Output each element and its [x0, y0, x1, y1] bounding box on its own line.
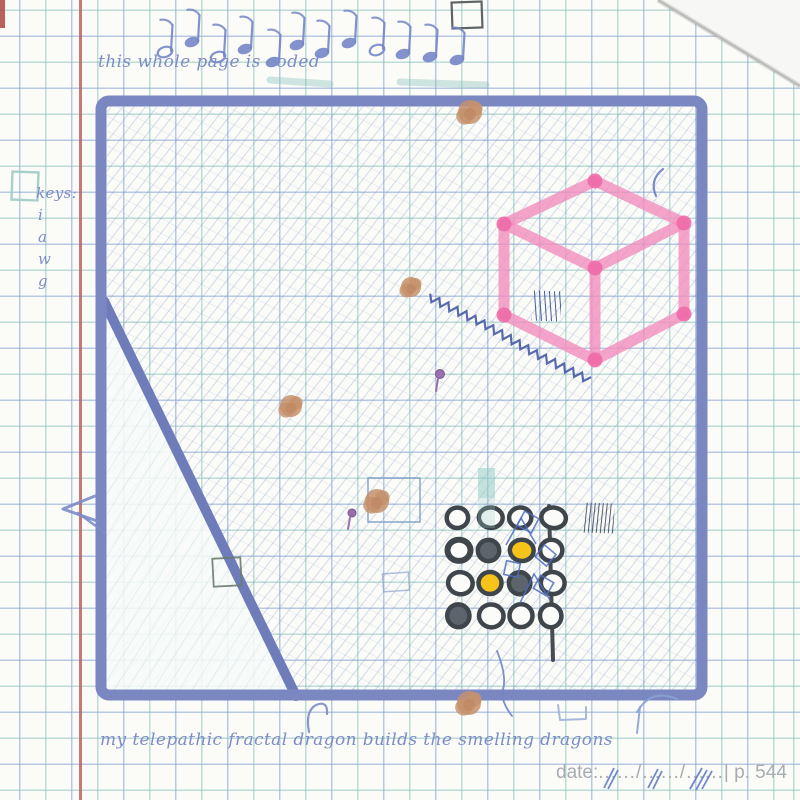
keys-legend: keys: i a w g — [36, 182, 77, 292]
cube-vertex-dot — [497, 217, 512, 232]
cube-vertex-dot — [588, 261, 603, 276]
small-square-doodle-top — [452, 1, 483, 28]
token-circle — [540, 506, 567, 530]
hook-doodle — [308, 704, 327, 732]
teal-highlight-strip — [478, 498, 495, 528]
music-note-icon — [421, 25, 438, 65]
page-number: p. 544 — [734, 762, 787, 783]
date-dots: ....../....../...... — [598, 762, 724, 783]
main-square-panel — [101, 80, 702, 696]
bracket-doodle — [558, 705, 586, 720]
key-item: a — [36, 226, 77, 248]
token-circle — [509, 539, 534, 562]
dark-crosshatch-square — [583, 502, 614, 533]
hatched-square-in-cube — [531, 291, 561, 322]
music-note-icon — [288, 13, 305, 53]
hand-drawing-layer — [0, 0, 800, 800]
keys-label: keys: — [36, 182, 77, 204]
date-label: date: — [556, 762, 598, 783]
cube-vertex-dot — [677, 216, 692, 231]
top-caption: this whole page is coded — [98, 52, 320, 72]
token-circle — [448, 540, 471, 561]
token-circle — [507, 571, 531, 596]
footer-separator: | — [724, 762, 729, 783]
token-circle — [539, 603, 563, 629]
less-than-doodle — [63, 496, 97, 521]
cube-vertex-dot — [677, 307, 692, 322]
teal-smear — [270, 80, 486, 85]
token-circle — [446, 604, 470, 628]
music-note-icon — [368, 18, 385, 58]
music-note-icon — [448, 28, 465, 68]
key-item: i — [36, 204, 77, 226]
music-note-icon — [340, 11, 357, 51]
key-item: g — [36, 270, 77, 292]
page-fold-corner — [658, 0, 800, 86]
bottom-caption: my telepathic fractal dragon builds the … — [100, 730, 613, 750]
key-item: w — [36, 248, 77, 270]
cube-vertex-dot — [497, 308, 512, 323]
token-circle — [476, 539, 500, 563]
token-circle — [478, 603, 506, 629]
token-circle — [510, 604, 533, 627]
token-circle — [445, 506, 469, 529]
cube-vertex-dot — [588, 353, 603, 368]
teal-square-doodle — [12, 172, 39, 201]
teal-highlight-strip — [478, 468, 495, 498]
cube-vertex-dot — [588, 174, 603, 189]
token-circle — [447, 571, 474, 596]
music-note-icon — [183, 10, 200, 50]
token-circle — [479, 572, 502, 594]
token-circle — [508, 507, 532, 529]
notebook-page: this whole page is coded keys: i a w g m… — [0, 0, 800, 800]
music-note-icon — [236, 17, 253, 57]
music-note-icon — [394, 22, 411, 62]
footer: date:....../....../......| p. 544 — [556, 762, 800, 796]
